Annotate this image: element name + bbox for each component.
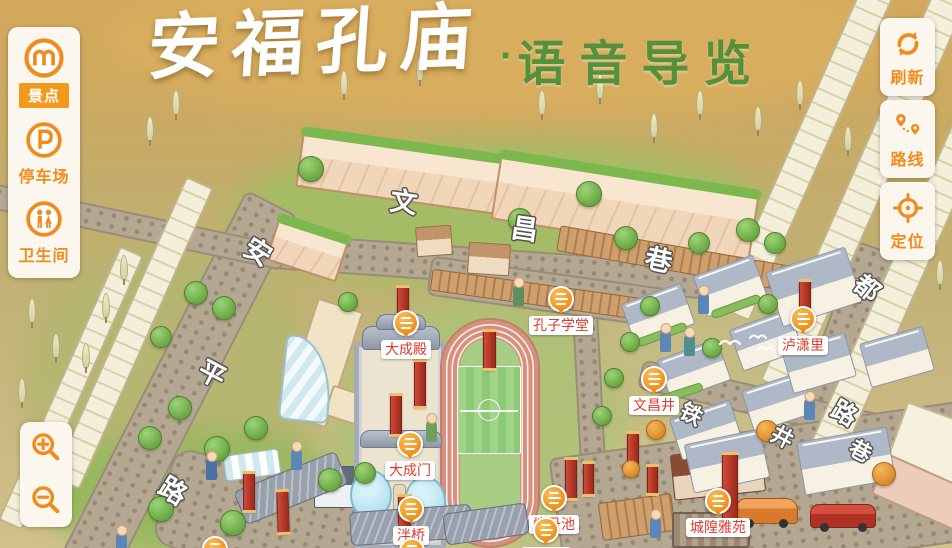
scenic-spot-icon bbox=[23, 37, 65, 79]
poi-marker bbox=[202, 536, 228, 548]
person-figure bbox=[698, 292, 709, 314]
audio-play-icon[interactable] bbox=[641, 366, 667, 392]
poi-label[interactable]: 泸潇里 bbox=[778, 336, 828, 355]
audio-play-icon[interactable] bbox=[393, 310, 419, 336]
voice-guide-map-app: 安平路文昌巷都路铁井巷 大成殿孔子学堂泸潇里文昌井大成门泮桥炼丹池城隍雅苑状元桥… bbox=[0, 0, 952, 548]
tree-icon bbox=[168, 396, 192, 420]
tree-icon bbox=[244, 416, 268, 440]
poplar-tree-icon bbox=[696, 90, 704, 116]
locate-icon bbox=[891, 191, 925, 225]
poplar-tree-icon bbox=[936, 260, 944, 286]
audio-play-icon[interactable] bbox=[397, 431, 423, 457]
person-figure bbox=[650, 516, 661, 538]
poplar-tree-icon bbox=[844, 126, 852, 152]
poi-marker: 大成殿 bbox=[381, 310, 431, 359]
person-figure bbox=[291, 448, 302, 470]
red-banner bbox=[243, 472, 255, 512]
red-banner bbox=[647, 465, 658, 495]
person-figure bbox=[116, 532, 127, 548]
tree-icon bbox=[640, 296, 660, 316]
tool-label: 路线 bbox=[890, 146, 924, 170]
tree-icon bbox=[184, 281, 208, 305]
poplar-tree-icon bbox=[120, 255, 128, 281]
poplar-tree-icon bbox=[340, 70, 348, 96]
poi-marker: 泸潇里 bbox=[778, 306, 828, 355]
poi-marker bbox=[399, 538, 425, 548]
poi-label[interactable]: 文昌井 bbox=[629, 396, 679, 415]
red-banner bbox=[483, 330, 496, 370]
poplar-tree-icon bbox=[416, 56, 424, 82]
poi-label[interactable]: 大成殿 bbox=[381, 340, 431, 359]
audio-play-icon[interactable] bbox=[202, 536, 228, 548]
parking-icon bbox=[25, 121, 63, 159]
tree-icon bbox=[138, 426, 162, 450]
tree-icon bbox=[604, 368, 624, 388]
person-figure bbox=[684, 334, 695, 356]
sidebar-item-label: 景点 bbox=[19, 83, 69, 108]
person-figure bbox=[804, 398, 815, 420]
poi-label[interactable]: 城隍雅苑 bbox=[686, 518, 750, 537]
tree-icon bbox=[620, 332, 640, 352]
tool-label: 定位 bbox=[890, 228, 924, 252]
tree-icon bbox=[338, 292, 358, 312]
audio-play-icon[interactable] bbox=[399, 538, 425, 548]
poplar-tree-icon bbox=[172, 90, 180, 116]
category-sidebar: 景点 停车场 卫生间 bbox=[8, 27, 80, 278]
red-banner bbox=[583, 462, 594, 496]
poplar-tree-icon bbox=[754, 106, 762, 132]
poi-label[interactable]: 大成门 bbox=[385, 461, 435, 480]
sidebar-item-scenic-spots[interactable]: 景点 bbox=[19, 37, 69, 108]
poi-label[interactable]: 孔子学堂 bbox=[529, 316, 593, 335]
refresh-icon bbox=[891, 27, 925, 61]
tree-icon bbox=[614, 226, 638, 250]
street-name-char: 昌 bbox=[509, 206, 541, 248]
poi-marker: 孔子学堂 bbox=[529, 286, 593, 335]
poplar-tree-icon bbox=[18, 378, 26, 404]
poplar-tree-icon bbox=[538, 90, 546, 116]
hut bbox=[467, 242, 511, 277]
tree-icon bbox=[758, 294, 778, 314]
tool-label: 刷新 bbox=[890, 64, 924, 88]
audio-play-icon[interactable] bbox=[548, 286, 574, 312]
tree-icon bbox=[646, 420, 666, 440]
red-banner bbox=[414, 360, 426, 408]
audio-play-icon[interactable] bbox=[541, 485, 567, 511]
tree-icon bbox=[212, 296, 236, 320]
sidebar-item-label: 停车场 bbox=[18, 163, 69, 187]
tree-icon bbox=[576, 181, 602, 207]
poplar-tree-icon bbox=[146, 116, 154, 142]
zoom-out-icon bbox=[29, 483, 63, 517]
car-icon bbox=[810, 504, 876, 528]
person-figure bbox=[660, 330, 671, 352]
tree-icon bbox=[150, 326, 172, 348]
poplar-tree-icon bbox=[82, 343, 90, 369]
sidebar-item-restroom[interactable]: 卫生间 bbox=[18, 200, 69, 266]
refresh-button[interactable]: 刷新 bbox=[880, 18, 935, 96]
poplar-tree-icon bbox=[28, 298, 36, 324]
route-button[interactable]: 路线 bbox=[880, 100, 935, 178]
tree-icon bbox=[736, 218, 760, 242]
red-banner bbox=[276, 490, 290, 534]
audio-play-icon[interactable] bbox=[705, 488, 731, 514]
poplar-tree-icon bbox=[102, 293, 110, 319]
poplar-tree-icon bbox=[796, 80, 804, 106]
person-figure bbox=[513, 284, 524, 306]
tree-icon bbox=[220, 510, 246, 536]
audio-play-icon[interactable] bbox=[398, 496, 424, 522]
tree-icon bbox=[592, 406, 612, 426]
person-figure bbox=[206, 458, 217, 480]
tree-icon bbox=[354, 462, 376, 484]
poi-marker: 城隍雅苑 bbox=[686, 488, 750, 537]
zoom-in-button[interactable] bbox=[28, 430, 64, 466]
street-name-char: 文 bbox=[388, 179, 420, 221]
tree-icon bbox=[872, 462, 896, 486]
restroom-icon bbox=[25, 200, 63, 238]
soccer-field bbox=[457, 366, 521, 454]
poplar-tree-icon bbox=[52, 333, 60, 359]
audio-play-icon[interactable] bbox=[790, 306, 816, 332]
tree-icon bbox=[764, 232, 786, 254]
tree-icon bbox=[688, 232, 710, 254]
tree-icon bbox=[318, 468, 342, 492]
poi-marker: 状元桥 bbox=[521, 517, 571, 548]
poi-marker: 文昌井 bbox=[629, 366, 679, 415]
sidebar-item-parking[interactable]: 停车场 bbox=[18, 121, 69, 187]
audio-play-icon[interactable] bbox=[533, 517, 559, 543]
locate-button[interactable]: 定位 bbox=[880, 182, 935, 260]
poplar-tree-icon bbox=[650, 113, 658, 139]
sidebar-item-label: 卫生间 bbox=[18, 242, 69, 266]
poplar-tree-icon bbox=[596, 74, 604, 100]
route-icon bbox=[891, 109, 925, 143]
zoom-out-button[interactable] bbox=[28, 483, 64, 519]
zoom-in-icon bbox=[29, 430, 63, 464]
zoom-controls bbox=[20, 422, 72, 527]
tree-icon bbox=[298, 156, 324, 182]
tree-icon bbox=[622, 460, 640, 478]
poi-marker: 大成门 bbox=[385, 431, 435, 480]
birds-icon bbox=[716, 330, 782, 356]
red-banner bbox=[390, 394, 402, 436]
hut bbox=[415, 225, 453, 257]
